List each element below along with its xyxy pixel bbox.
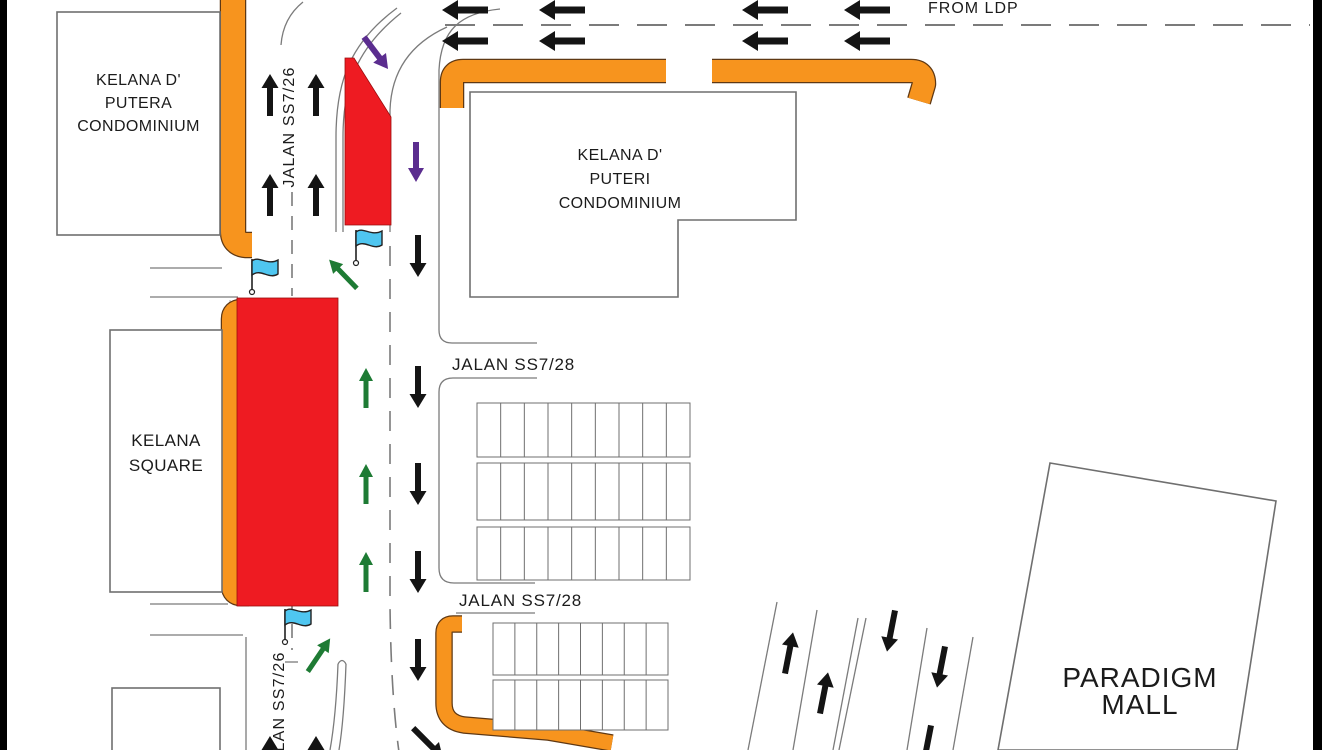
- lane-arrow-left-icon: [844, 31, 890, 51]
- diagonal-lane-line: [839, 618, 866, 750]
- jalan-ss726-label-north: JALAN SS7/26: [282, 62, 302, 192]
- building-label-line: KELANA D': [57, 69, 220, 92]
- closure-zone-north: [345, 58, 391, 225]
- curb-putera: [233, 0, 252, 245]
- diagonal-lane-line: [833, 618, 858, 750]
- jalan-ss726-label-south: JALAN SS7/26: [272, 647, 292, 750]
- building-label-line: PARADIGM: [1038, 664, 1242, 691]
- building-label-line: MALL: [1038, 691, 1242, 718]
- closure-zones: [237, 58, 391, 606]
- building-label-line: KELANA D': [528, 144, 712, 168]
- kelana-square-label: KELANA SQUARE: [110, 428, 222, 478]
- traffic-arrow-icon: [410, 639, 427, 681]
- parking-row: [477, 527, 690, 580]
- parking-row: [477, 463, 690, 520]
- traffic-arrow-icon: [410, 551, 427, 593]
- closure-flag-icon: [250, 259, 279, 295]
- flag-base: [283, 640, 288, 645]
- flag-base: [250, 290, 255, 295]
- lane-arrow-left-icon: [844, 0, 890, 20]
- building-label-line: PUTERI: [528, 168, 712, 192]
- closure-zone-main: [237, 298, 338, 606]
- traffic-arrow-icon: [777, 631, 802, 675]
- island-edge: [339, 664, 346, 750]
- building-label-line: CONDOMINIUM: [528, 192, 712, 216]
- green-route-arrow-icon: [359, 464, 373, 504]
- closure-flag-icon: [354, 230, 383, 266]
- traffic-plan-diagram: FROM LDP KELANA D' PUTERA CONDOMINIUM KE…: [0, 0, 1322, 750]
- purple-route-arrow-icon: [358, 32, 395, 74]
- traffic-arrow-icon: [410, 366, 427, 408]
- diagonal-lane-line: [793, 610, 817, 750]
- frame-border-left: [0, 0, 7, 750]
- traffic-arrow-icon: [262, 74, 279, 116]
- flag-banner: [285, 609, 311, 626]
- centerline-leader: [281, 2, 303, 45]
- parking-stalls-group: [477, 403, 690, 730]
- traffic-arrow-icon: [308, 736, 325, 750]
- traffic-arrow-icon: [262, 174, 279, 216]
- traffic-arrow-icon: [915, 724, 940, 750]
- from-ldp-label: FROM LDP: [928, 1, 1058, 17]
- east-centerline: [390, 246, 399, 750]
- traffic-arrow-icon: [812, 671, 837, 715]
- flag-banner: [252, 259, 278, 276]
- kelana-d-puteri-label: KELANA D' PUTERI CONDOMINIUM: [528, 144, 712, 216]
- traffic-arrow-icon: [308, 174, 325, 216]
- building-label-line: CONDOMINIUM: [57, 115, 220, 138]
- closure-flag-icon: [283, 609, 312, 645]
- lane-arrow-left-icon: [539, 31, 585, 51]
- island-edge: [330, 664, 338, 750]
- building-label-line: KELANA: [110, 428, 222, 453]
- paradigm-mall-label: PARADIGM MALL: [1038, 664, 1242, 718]
- traffic-arrow-icon: [407, 722, 449, 750]
- diagonal-lane-line: [907, 628, 927, 750]
- frame-border-right: [1313, 0, 1322, 750]
- green-route-arrow-icon: [359, 368, 373, 408]
- parking-row: [477, 403, 690, 457]
- diagonal-lane-line: [748, 602, 777, 750]
- traffic-arrow-icon: [879, 609, 904, 653]
- lane-arrow-left-icon: [742, 31, 788, 51]
- traffic-arrow-icon: [410, 235, 427, 277]
- building-southwest: [112, 688, 220, 750]
- building-label-line: PUTERA: [57, 92, 220, 115]
- jalan-ss728-label-south: JALAN SS7/28: [459, 592, 599, 609]
- lane-arrow-left-icon: [742, 0, 788, 20]
- jalan-ss728-label-north: JALAN SS7/28: [452, 356, 592, 373]
- lane-arrow-left-icon: [539, 0, 585, 20]
- building-label-line: SQUARE: [110, 453, 222, 478]
- flag-banner: [356, 230, 382, 247]
- kelana-d-putera-label: KELANA D' PUTERA CONDOMINIUM: [57, 69, 220, 138]
- flag-base: [354, 261, 359, 266]
- purple-route-arrow-icon: [408, 142, 424, 182]
- traffic-arrow-icon: [410, 463, 427, 505]
- green-route-arrow-icon: [359, 552, 373, 592]
- green-route-arrow-icon: [302, 635, 336, 676]
- diagonal-lane-line: [953, 637, 973, 750]
- island-cap: [338, 661, 346, 665]
- traffic-arrow-icon: [929, 645, 954, 689]
- traffic-arrow-icon: [308, 74, 325, 116]
- lane-arrow-left-icon: [442, 0, 488, 20]
